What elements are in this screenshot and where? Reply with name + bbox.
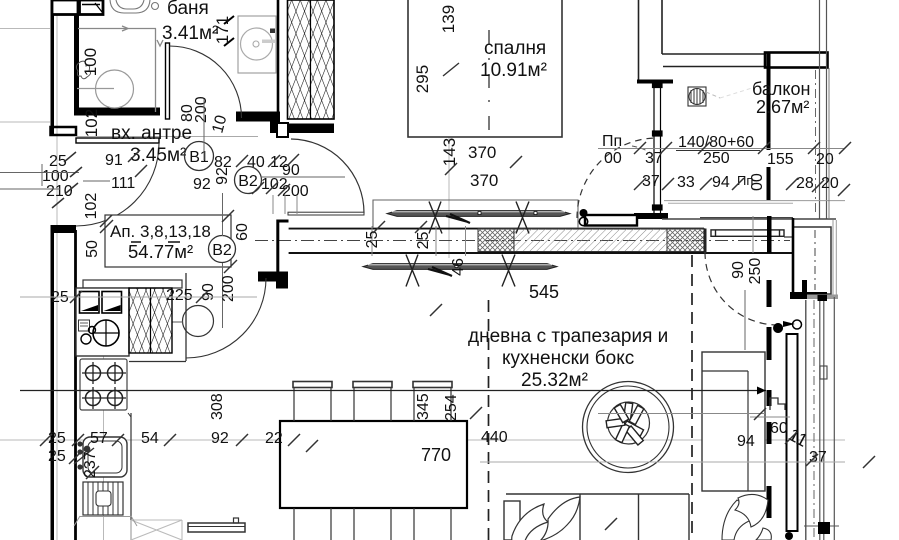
svg-text:91: 91 xyxy=(105,152,123,169)
svg-text:28: 28 xyxy=(796,175,814,192)
svg-text:545: 545 xyxy=(529,282,559,302)
svg-text:00: 00 xyxy=(604,150,622,167)
svg-text:94: 94 xyxy=(712,174,730,191)
svg-text:295: 295 xyxy=(413,65,432,93)
svg-text:22: 22 xyxy=(265,430,283,447)
svg-text:370: 370 xyxy=(468,143,496,162)
svg-text:20: 20 xyxy=(816,151,834,168)
svg-text:25.32м²: 25.32м² xyxy=(521,370,588,391)
svg-text:3.41м²: 3.41м² xyxy=(162,23,218,44)
svg-text:балкон: балкон xyxy=(752,79,810,99)
svg-text:25: 25 xyxy=(364,231,381,249)
svg-text:баня: баня xyxy=(167,0,209,19)
svg-text:2.67м²: 2.67м² xyxy=(756,97,809,117)
svg-text:В1: В1 xyxy=(189,149,209,166)
svg-text:370: 370 xyxy=(470,171,498,190)
svg-text:102: 102 xyxy=(83,193,100,220)
svg-text:225: 225 xyxy=(166,287,193,304)
svg-text:вх. антре: вх. антре xyxy=(111,123,192,144)
svg-text:90: 90 xyxy=(730,261,747,279)
svg-text:90: 90 xyxy=(200,283,217,301)
svg-text:00: 00 xyxy=(749,173,766,191)
svg-text:54.77м²: 54.77м² xyxy=(128,241,193,262)
svg-text:57: 57 xyxy=(90,430,108,447)
svg-text:102: 102 xyxy=(82,109,101,137)
svg-text:60: 60 xyxy=(234,223,251,241)
svg-text:Ап. 3,8,13,18: Ап. 3,8,13,18 xyxy=(110,222,211,241)
svg-text:345: 345 xyxy=(415,393,432,420)
svg-text:25: 25 xyxy=(48,448,66,465)
svg-text:40: 40 xyxy=(247,154,265,171)
svg-text:50: 50 xyxy=(84,240,101,258)
svg-text:33: 33 xyxy=(677,174,695,191)
svg-text:308: 308 xyxy=(209,393,226,420)
svg-text:спалня: спалня xyxy=(484,38,546,59)
svg-text:54: 54 xyxy=(141,430,159,447)
svg-text:770: 770 xyxy=(421,445,451,465)
svg-text:92: 92 xyxy=(211,430,229,447)
svg-text:440: 440 xyxy=(481,429,508,446)
svg-text:37: 37 xyxy=(642,173,660,190)
svg-text:143: 143 xyxy=(440,138,459,166)
svg-text:139: 139 xyxy=(439,5,458,33)
svg-text:100: 100 xyxy=(81,48,100,76)
svg-text:дневна с трапезария и: дневна с трапезария и xyxy=(468,326,668,347)
svg-text:кухненски бокс: кухненски бокс xyxy=(502,348,634,369)
svg-text:10.91м²: 10.91м² xyxy=(480,60,547,81)
svg-text:60: 60 xyxy=(770,420,788,437)
svg-text:37: 37 xyxy=(809,449,827,466)
svg-text:171: 171 xyxy=(213,16,232,44)
svg-text:250: 250 xyxy=(747,258,764,285)
svg-text:20: 20 xyxy=(821,175,839,192)
svg-text:В2: В2 xyxy=(238,173,258,190)
svg-text:25: 25 xyxy=(48,430,66,447)
svg-text:92: 92 xyxy=(214,167,231,185)
svg-text:94: 94 xyxy=(737,433,755,450)
svg-text:155: 155 xyxy=(767,151,794,168)
svg-text:46: 46 xyxy=(450,258,467,276)
svg-text:250: 250 xyxy=(703,150,730,167)
svg-text:В2: В2 xyxy=(212,242,232,259)
svg-text:111: 111 xyxy=(111,175,135,192)
svg-text:200: 200 xyxy=(193,96,210,123)
svg-text:92: 92 xyxy=(193,176,211,193)
svg-text:200: 200 xyxy=(282,183,309,200)
svg-text:25: 25 xyxy=(415,232,432,250)
svg-text:37: 37 xyxy=(645,150,663,167)
svg-text:254: 254 xyxy=(443,394,460,421)
svg-text:3.45м²: 3.45м² xyxy=(130,145,186,166)
svg-text:200: 200 xyxy=(220,275,237,302)
